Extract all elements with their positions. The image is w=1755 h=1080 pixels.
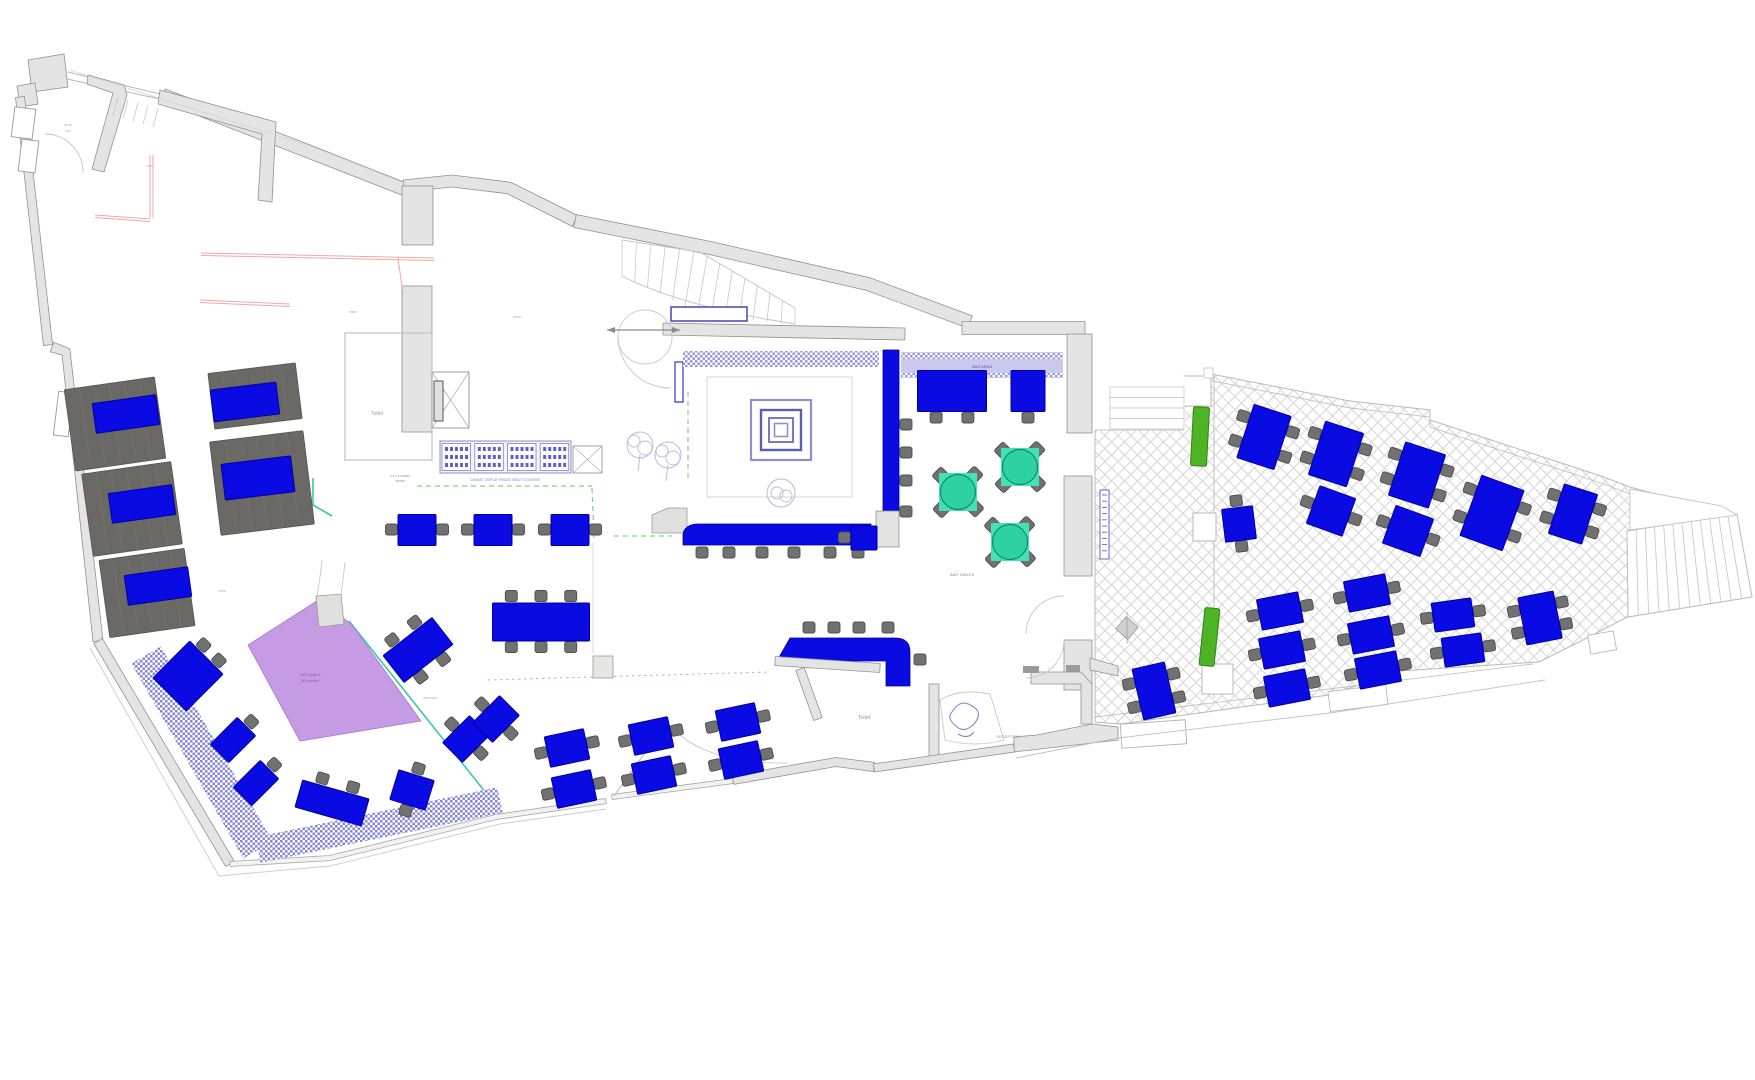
svg-text:Toilet: Toilet [858, 715, 871, 721]
svg-text:xxxx: xxxx [218, 588, 226, 593]
svg-text:xxxx: xxxx [349, 309, 357, 314]
svg-text:BAR AREA: BAR AREA [972, 364, 992, 369]
svg-text:xxxx xxxx: xxxx xxxx [423, 696, 437, 700]
svg-text:Toilet: Toilet [371, 411, 383, 417]
svg-text:xx xx: xx xx [64, 123, 72, 127]
svg-text:BAR TABLES: BAR TABLES [950, 572, 975, 577]
svg-text:RECEPTION: RECEPTION [996, 734, 1019, 739]
svg-text:xxxx: xxxx [513, 314, 521, 319]
svg-text:xxx: xxx [65, 129, 71, 133]
svg-text:CABINET DISPLAY FRIDGE TABLET: CABINET DISPLAY FRIDGE TABLET COUNTER [470, 478, 541, 482]
svg-text:LKS Zone 4: LKS Zone 4 [299, 672, 321, 677]
svg-text:x x x x xxxxxx: x x x x xxxxxx [390, 474, 410, 478]
svg-text:40 covers: 40 covers [301, 678, 318, 683]
svg-text:xxxxxx: xxxxxx [395, 479, 405, 483]
